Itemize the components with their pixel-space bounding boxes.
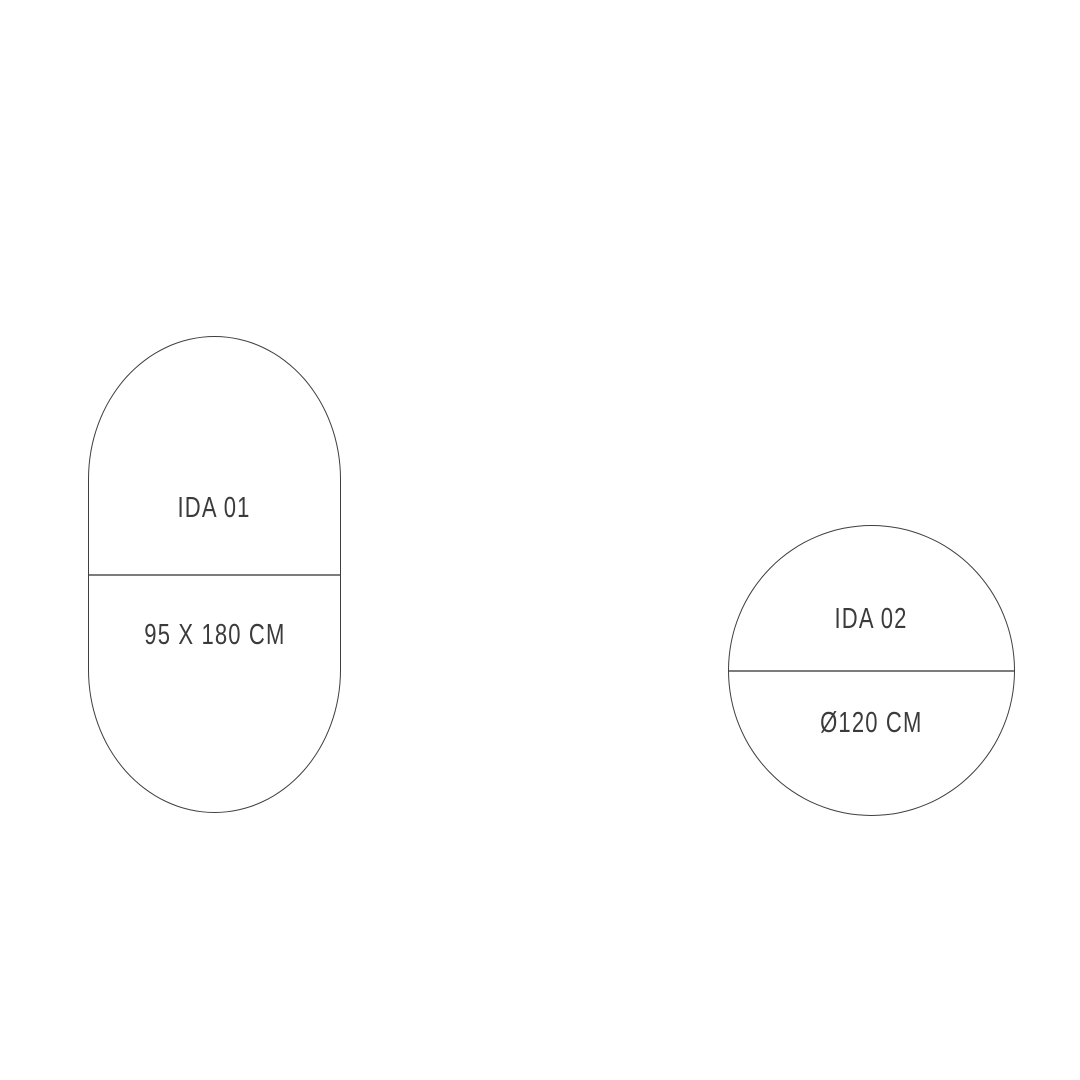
divider-line	[89, 574, 340, 576]
product-name-text: IDA 01	[178, 494, 251, 523]
product-name-label: IDA 02	[729, 605, 1014, 634]
product-name-label: IDA 01	[89, 494, 340, 523]
product-dimensions-label: 95 X 180 CM	[89, 621, 340, 650]
product-outline-ida-01: IDA 01 95 X 180 CM	[88, 336, 341, 813]
product-name-text: IDA 02	[835, 605, 908, 634]
size-diagram-canvas: IDA 01 95 X 180 CM IDA 02 Ø120 CM	[0, 0, 1080, 1080]
product-dimensions-label: Ø120 CM	[729, 709, 1014, 738]
product-dimensions-text: 95 X 180 CM	[144, 621, 285, 650]
divider-line	[729, 670, 1014, 672]
product-dimensions-text: Ø120 CM	[820, 709, 922, 738]
product-outline-ida-02: IDA 02 Ø120 CM	[728, 525, 1015, 816]
